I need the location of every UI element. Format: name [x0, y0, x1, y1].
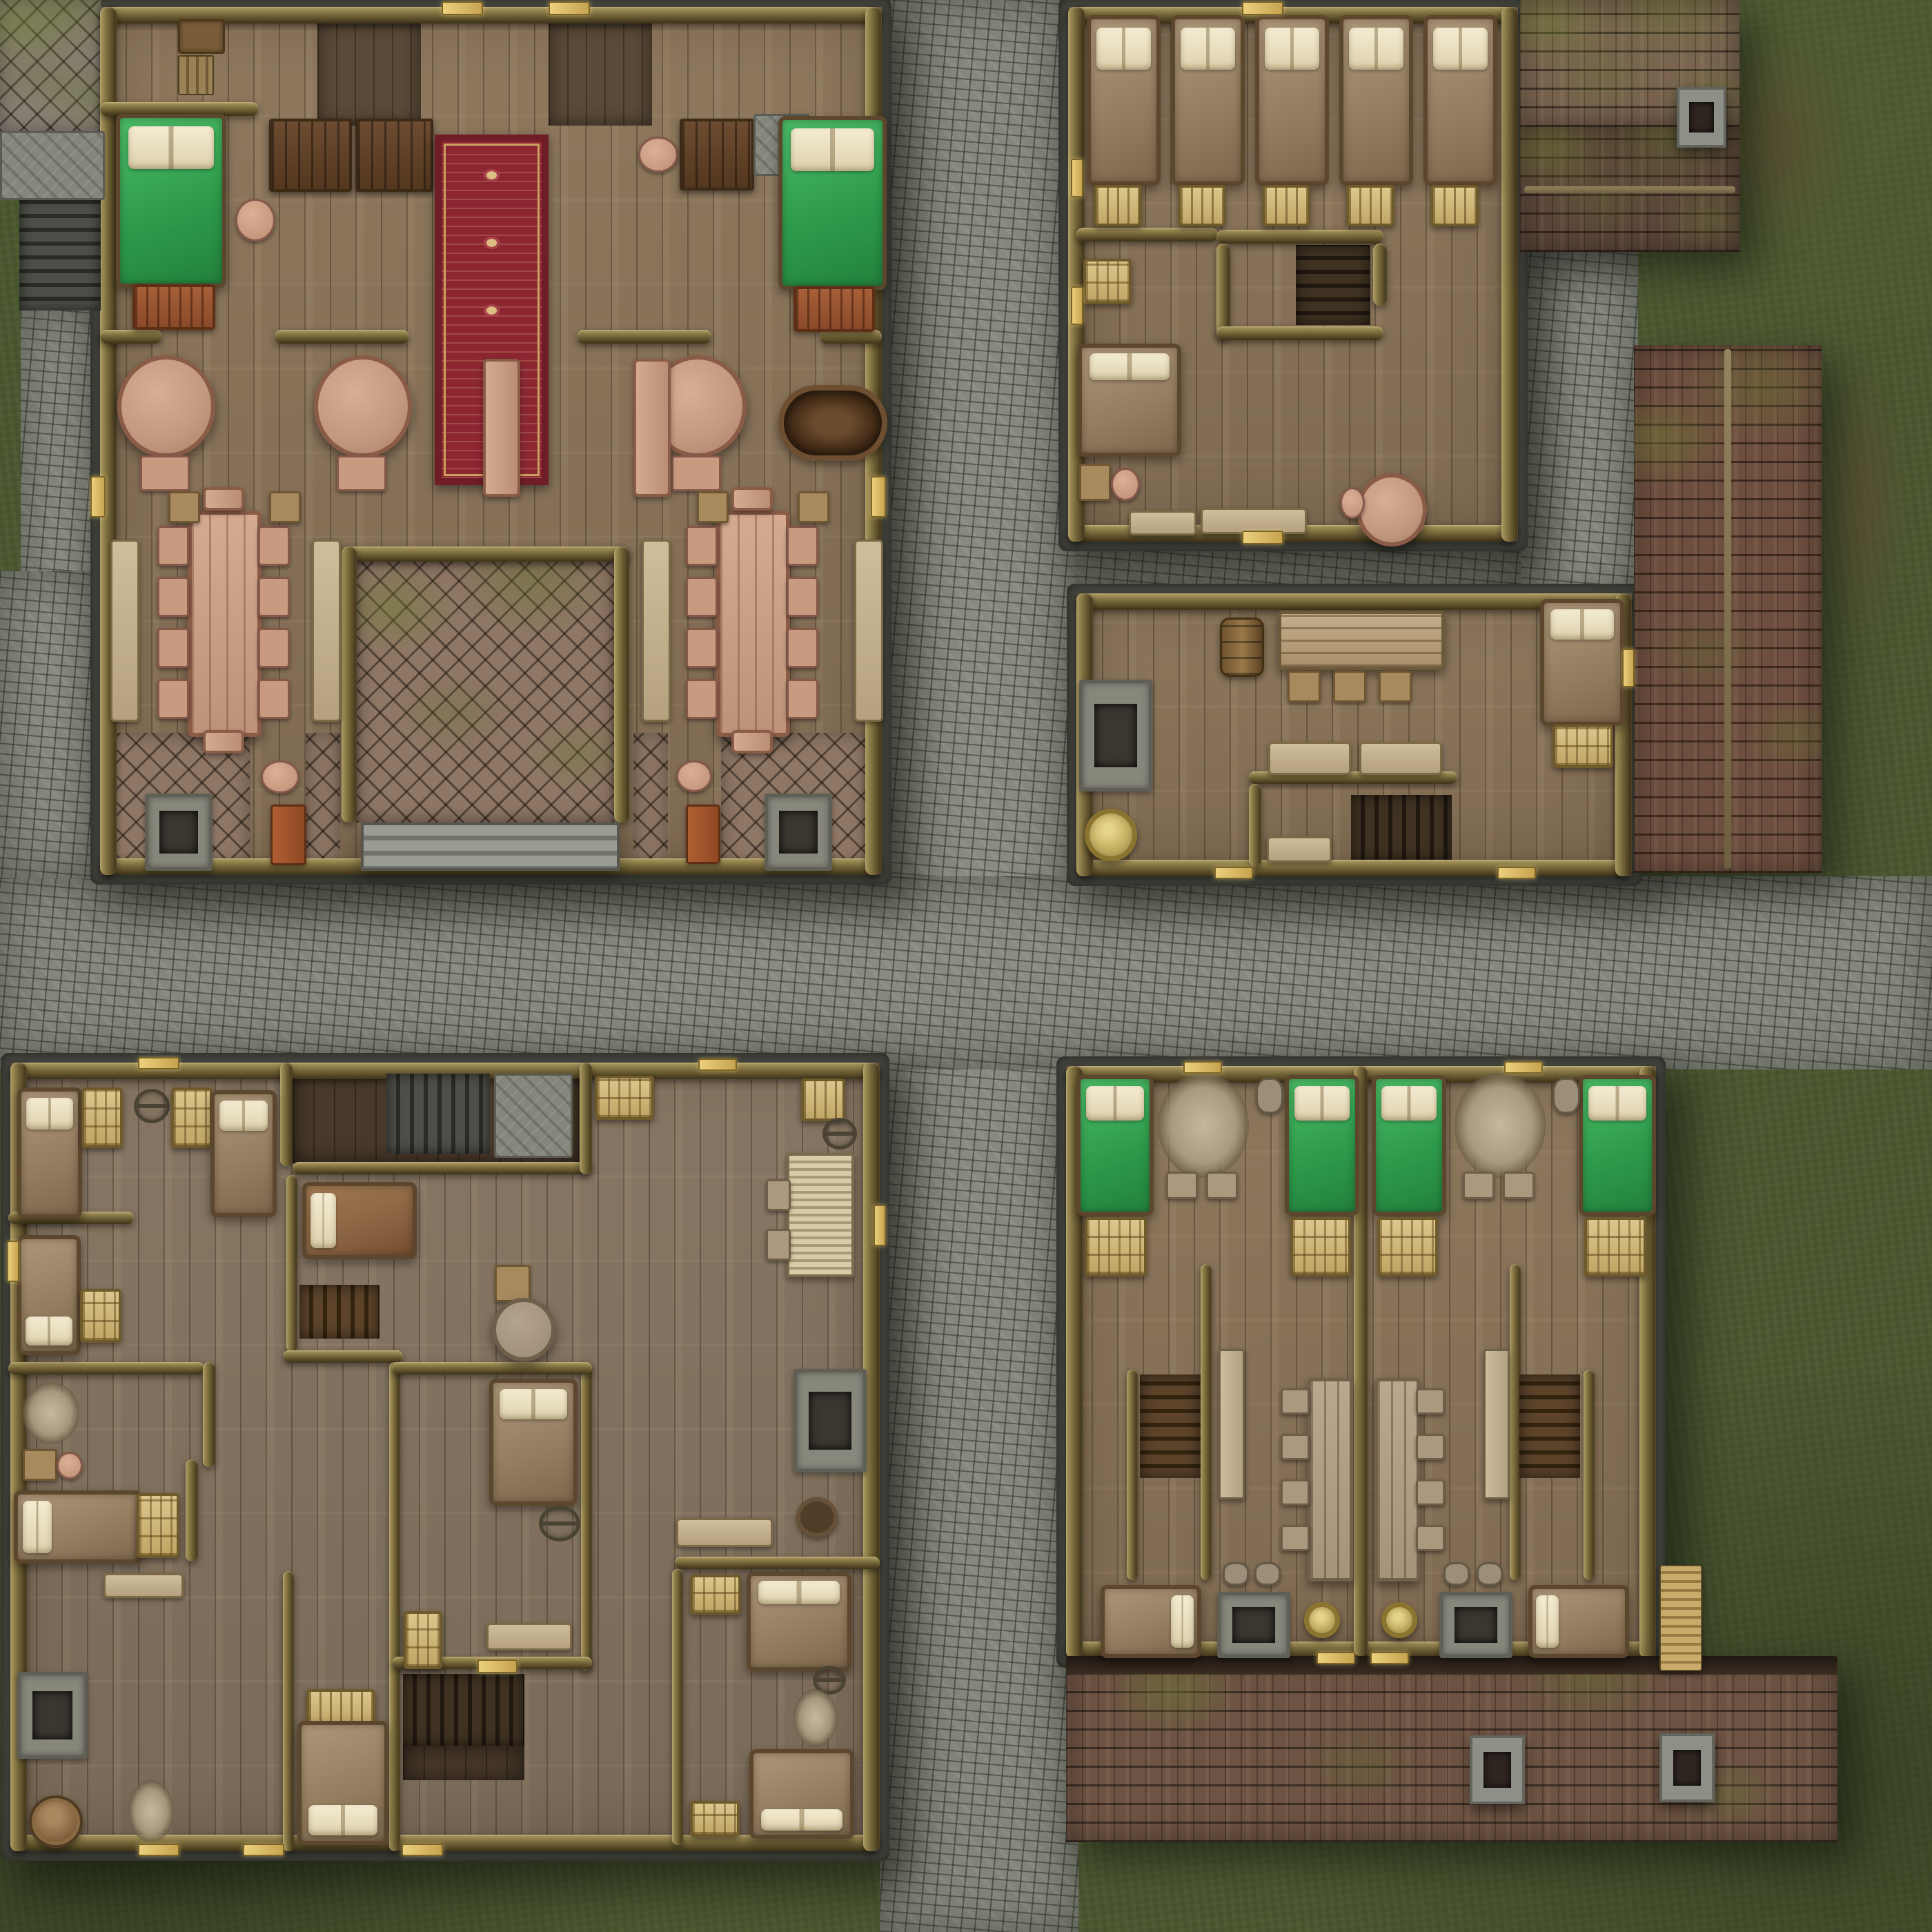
stool-square: [798, 491, 829, 523]
bench-pale: [1267, 836, 1332, 862]
interior-wall: [389, 1362, 400, 1851]
interior-wall: [1249, 784, 1261, 867]
door-threshold: [1622, 649, 1635, 687]
staircase: [403, 1674, 524, 1746]
pillow: [128, 126, 214, 169]
storage-chest-stack: [1290, 1217, 1351, 1276]
interior-wall: [100, 330, 162, 344]
chimney-inner: [1483, 1752, 1511, 1788]
chair-gray: [1206, 1172, 1238, 1199]
staircase: [386, 1074, 490, 1154]
staircase: [1140, 1374, 1201, 1478]
fireplace-inner: [809, 1392, 851, 1450]
woodpile: [1659, 1565, 1702, 1671]
storage-chest-stack: [171, 1087, 213, 1148]
bed-single: [1423, 15, 1497, 186]
pillow: [310, 1193, 336, 1248]
interior-wall: [8, 1362, 204, 1374]
fireplace-inner: [779, 811, 818, 853]
dirt-patch: [1815, 345, 1911, 662]
trapdoor-ring-inner: [135, 1104, 168, 1108]
interior-wall: [577, 330, 711, 344]
plank-stack: [178, 55, 214, 95]
chimney: [1677, 87, 1726, 148]
fireplace-inner: [1232, 1607, 1274, 1643]
barrel: [29, 1795, 83, 1848]
bed-double: [489, 1379, 578, 1506]
door-threshold: [90, 476, 106, 517]
stool-square: [1079, 464, 1111, 501]
bench-pale: [103, 1573, 184, 1598]
oval-rug: [128, 1780, 174, 1842]
chair-gray: [766, 1179, 791, 1211]
storage-chest-stack: [690, 1801, 740, 1837]
interior-wall: [1216, 326, 1383, 340]
bed-single: [1255, 15, 1329, 186]
fireplace: [1217, 1592, 1290, 1658]
bed-green-blanket: [116, 114, 226, 288]
door-threshold: [1317, 1652, 1355, 1664]
diamond-shingle-roof: [633, 733, 668, 868]
bed-single: [1087, 15, 1161, 186]
bed-single: [210, 1090, 277, 1217]
chair-gray: [1166, 1172, 1198, 1199]
long-table: [1374, 1378, 1420, 1581]
wood-alcove: [549, 22, 652, 126]
storage-chest: [1262, 185, 1310, 226]
bench-pale: [642, 540, 671, 722]
interior-wall: [203, 1362, 215, 1467]
chair: [686, 679, 718, 719]
chair-gray: [1463, 1172, 1495, 1199]
stool-square: [1379, 671, 1412, 702]
bench-pale: [486, 1623, 572, 1650]
pillow: [308, 1805, 378, 1835]
bed-double: [747, 1572, 851, 1671]
interior-wall: [675, 1557, 880, 1569]
storage-chest: [1346, 185, 1394, 226]
staircase: [299, 1285, 379, 1339]
chair: [686, 577, 718, 617]
trapdoor-ring-inner: [825, 1132, 856, 1136]
door-threshold: [1370, 1652, 1409, 1664]
roof-eave: [1066, 1656, 1837, 1674]
chair: [258, 628, 290, 668]
bench: [203, 730, 244, 753]
bed-single: [1101, 1585, 1201, 1658]
stool-round: [261, 760, 299, 793]
chair: [157, 679, 189, 719]
bench: [203, 487, 244, 511]
door-threshold: [442, 1, 483, 15]
interior-wall: [1076, 228, 1218, 241]
fireplace-inner: [159, 811, 198, 853]
bathtub: [778, 385, 887, 461]
stool-square: [269, 491, 301, 523]
trapdoor-ring: [539, 1506, 580, 1541]
interior-wall: [1373, 244, 1387, 306]
stone-block: [0, 131, 105, 200]
trapdoor-ring: [822, 1118, 857, 1150]
diamond-shingle-roof: [306, 733, 340, 868]
bench-pale: [676, 1518, 773, 1547]
door-threshold: [1242, 531, 1283, 544]
bench: [731, 730, 773, 753]
stool-small: [1443, 1562, 1470, 1586]
stone-block: [494, 1074, 573, 1158]
pillow: [1381, 1086, 1437, 1121]
pillow: [1265, 28, 1320, 70]
chest-red: [793, 286, 875, 332]
chair-gray: [1416, 1479, 1445, 1506]
bed-green-blanket: [1076, 1075, 1154, 1216]
round-table: [314, 355, 412, 457]
interior-wall: [1216, 244, 1230, 340]
door-threshold: [402, 1844, 443, 1856]
bed-single: [14, 1490, 142, 1564]
stool-square: [1288, 671, 1321, 702]
crate-stack: [404, 1611, 442, 1669]
chair: [157, 526, 189, 566]
pillow: [23, 1501, 52, 1552]
fireplace: [1439, 1592, 1512, 1658]
door-threshold: [1071, 286, 1083, 325]
pillow: [791, 128, 875, 171]
storage-chest-stack: [81, 1087, 123, 1148]
bed-green-blanket: [1372, 1075, 1446, 1216]
pillow: [1090, 353, 1170, 381]
stool-small: [1552, 1078, 1580, 1114]
door-threshold: [1504, 1061, 1543, 1074]
trapdoor-ring-inner: [540, 1521, 579, 1526]
side-counter: [1219, 1349, 1245, 1499]
door-threshold: [477, 1659, 517, 1673]
dark-shelf: [680, 119, 754, 190]
storage-chest-stack: [1552, 724, 1613, 768]
bench-pale: [1129, 511, 1196, 535]
door-threshold: [1242, 1, 1283, 15]
chair-gray: [1416, 1434, 1445, 1460]
pillow: [758, 1581, 840, 1604]
door-threshold: [871, 476, 886, 517]
interior-wall: [283, 1350, 403, 1363]
pillow: [761, 1809, 842, 1831]
fireplace-inner: [1455, 1607, 1497, 1643]
stool-square: [168, 491, 200, 523]
door-threshold: [698, 1058, 737, 1071]
stool-small: [1256, 1078, 1283, 1114]
interior-wall: [342, 546, 629, 562]
door-threshold: [138, 1057, 179, 1069]
chair: [258, 577, 290, 617]
roof-ridge: [1724, 349, 1731, 869]
bench-red: [270, 805, 306, 865]
interior-wall: [293, 1162, 592, 1174]
tavern-annex-wall-south: [1076, 860, 1632, 876]
storage-chest-stack: [1085, 1217, 1147, 1276]
chair-gray: [766, 1229, 791, 1261]
bed-double: [1078, 344, 1181, 457]
chair: [258, 679, 290, 719]
storage-chest: [801, 1078, 845, 1121]
interior-wall: [1216, 230, 1383, 244]
storage-chest: [1430, 185, 1479, 226]
chimney: [1470, 1735, 1525, 1804]
side-counter: [1483, 1349, 1510, 1499]
pillow: [1588, 1086, 1646, 1121]
interior-wall: [581, 1362, 592, 1671]
fireplace: [793, 1369, 867, 1472]
stool-square: [23, 1449, 57, 1481]
stool-small: [1254, 1562, 1281, 1586]
stone-steps: [361, 822, 620, 871]
bed-single: [1528, 1585, 1629, 1658]
stool-round: [638, 137, 678, 172]
fireplace: [17, 1672, 88, 1759]
staircase: [1351, 795, 1452, 860]
pillow: [1171, 1595, 1193, 1647]
storage-chest-stack: [1584, 1217, 1646, 1276]
dark-shelf: [355, 119, 433, 192]
interior-wall: [392, 1362, 592, 1374]
fireplace: [1079, 680, 1152, 791]
chimney: [1659, 1733, 1715, 1802]
open-barrel: [796, 1497, 838, 1537]
door-threshold: [1214, 867, 1253, 879]
pillow: [26, 1098, 74, 1130]
door-threshold: [7, 1241, 19, 1282]
pillow: [1349, 28, 1404, 70]
chair: [140, 455, 190, 491]
chair: [686, 628, 718, 668]
fireplace: [145, 793, 213, 871]
brass-basin: [1381, 1602, 1417, 1638]
chimney-inner: [1673, 1750, 1701, 1786]
storage-chest-stack: [80, 1289, 121, 1343]
bench-pale: [110, 540, 139, 722]
chair-gray: [1281, 1479, 1310, 1506]
chimney-inner: [1689, 102, 1714, 133]
bed-green-blanket: [1579, 1075, 1656, 1216]
door-threshold: [874, 1205, 886, 1246]
chair: [157, 577, 189, 617]
pillow: [26, 1317, 72, 1345]
bunkhouse-wall-east: [1501, 7, 1518, 542]
interior-wall: [1201, 1264, 1212, 1580]
stool-round: [1340, 487, 1365, 519]
interior-wall: [672, 1569, 683, 1845]
bar-counter: [1278, 611, 1445, 670]
barrel-side: [1220, 618, 1264, 677]
chair-gray: [1416, 1388, 1445, 1414]
dining-table: [188, 511, 262, 737]
chair: [671, 455, 721, 491]
chest-red: [132, 284, 215, 330]
interior-wall: [1584, 1370, 1595, 1580]
bed-green-blanket: [1285, 1075, 1359, 1216]
bed-green-blanket: [778, 116, 887, 290]
stool-small: [1223, 1562, 1249, 1586]
oval-rug: [1455, 1073, 1546, 1178]
bunkhouse-wall-west: [1068, 7, 1085, 542]
interior-wall: [286, 1175, 297, 1352]
storage-chest-stack: [1083, 259, 1132, 304]
pillow: [1536, 1595, 1558, 1647]
chair: [787, 679, 818, 719]
stool-small: [1477, 1562, 1503, 1586]
bed-single: [1339, 15, 1413, 186]
bed-single: [1540, 599, 1624, 726]
chair-gray: [1416, 1525, 1445, 1551]
bench-pale: [312, 540, 341, 722]
stool-round: [57, 1452, 83, 1479]
chair: [787, 628, 818, 668]
brass-basin: [1304, 1602, 1340, 1638]
bench-pale: [1359, 742, 1442, 775]
bed-brown: [302, 1182, 417, 1259]
pillow: [1181, 28, 1236, 70]
long-table: [1308, 1378, 1353, 1581]
battle-map: [0, 0, 1932, 1932]
diamond-shingle-roof: [0, 0, 101, 131]
bed-single: [17, 1087, 82, 1219]
dark-shelf: [269, 119, 352, 192]
round-table: [117, 355, 215, 457]
bench: [731, 487, 773, 511]
crate: [178, 19, 225, 54]
oval-rug: [793, 1689, 838, 1747]
bed-double: [297, 1721, 388, 1845]
pillow: [1433, 28, 1488, 70]
interior-wall: [186, 1459, 198, 1561]
chair-gray: [1281, 1434, 1310, 1460]
stool-square: [1333, 671, 1366, 702]
door-threshold: [1071, 159, 1083, 197]
wood-alcove: [317, 22, 421, 126]
chair: [258, 526, 290, 566]
roof-ridge: [1524, 186, 1735, 193]
bench: [483, 359, 520, 497]
chair: [787, 577, 818, 617]
interior-wall: [580, 1063, 592, 1174]
interior-wall: [280, 1063, 293, 1166]
brass-basin: [1085, 809, 1137, 861]
trapdoor-ring-inner: [815, 1678, 845, 1682]
round-table: [1357, 473, 1427, 546]
shingle-roof: [1066, 1656, 1837, 1842]
fireplace-inner: [1094, 704, 1136, 767]
street-horizontal: [0, 876, 1932, 1069]
door-threshold: [243, 1844, 284, 1856]
interior-wall: [820, 330, 882, 344]
staircase: [1519, 1374, 1580, 1478]
bed-double: [749, 1749, 854, 1839]
dark-floor: [403, 1746, 524, 1780]
chair-gray: [1503, 1172, 1535, 1199]
staircase: [19, 195, 101, 310]
stool-round: [1111, 468, 1140, 501]
chair-gray: [1281, 1525, 1310, 1551]
pillow: [1550, 609, 1614, 640]
door-threshold: [1183, 1061, 1222, 1074]
diamond-shingle-roof: [357, 562, 614, 822]
door-threshold: [1497, 867, 1536, 879]
stool-round: [676, 760, 712, 792]
bed-single: [1171, 15, 1245, 186]
bed-single: [17, 1235, 81, 1355]
pillow: [1096, 28, 1152, 70]
round-table-gray: [492, 1298, 555, 1361]
chair: [686, 526, 718, 566]
dining-table: [716, 511, 790, 737]
pillow: [500, 1389, 566, 1420]
bench-pale: [1268, 742, 1351, 775]
chair: [787, 526, 818, 566]
bench-red: [686, 805, 720, 864]
storage-chest-stack: [690, 1575, 741, 1615]
stool-square: [697, 491, 729, 523]
storage-chest-stack: [595, 1076, 654, 1120]
stool-round: [235, 199, 275, 241]
storage-chest-stack: [137, 1493, 179, 1558]
interior-wall: [342, 546, 357, 822]
pillow: [219, 1101, 268, 1132]
interior-wall: [283, 1571, 294, 1851]
chair-gray: [1281, 1388, 1310, 1414]
oval-rug: [1158, 1073, 1249, 1178]
bench-pale: [854, 540, 883, 722]
oval-rug: [23, 1382, 79, 1444]
fireplace: [765, 793, 832, 871]
fireplace-inner: [32, 1691, 73, 1739]
door-threshold: [549, 1, 590, 15]
slatted-table: [787, 1153, 854, 1277]
door-threshold: [138, 1844, 179, 1856]
trapdoor-ring: [134, 1089, 170, 1123]
storage-chest: [1178, 185, 1226, 226]
pillow: [1294, 1086, 1350, 1121]
interior-wall: [1127, 1370, 1138, 1580]
chair: [157, 628, 189, 668]
alley-west-low: [0, 571, 103, 879]
bench: [633, 359, 671, 497]
interior-wall: [275, 330, 409, 344]
storage-chest: [1094, 185, 1142, 226]
staircase: [1296, 245, 1370, 325]
storage-chest-stack: [1377, 1217, 1438, 1276]
storage-chest: [306, 1689, 375, 1725]
chair: [337, 455, 386, 491]
pillow: [1086, 1086, 1144, 1121]
interior-wall: [614, 546, 629, 822]
stool-square: [495, 1265, 531, 1302]
